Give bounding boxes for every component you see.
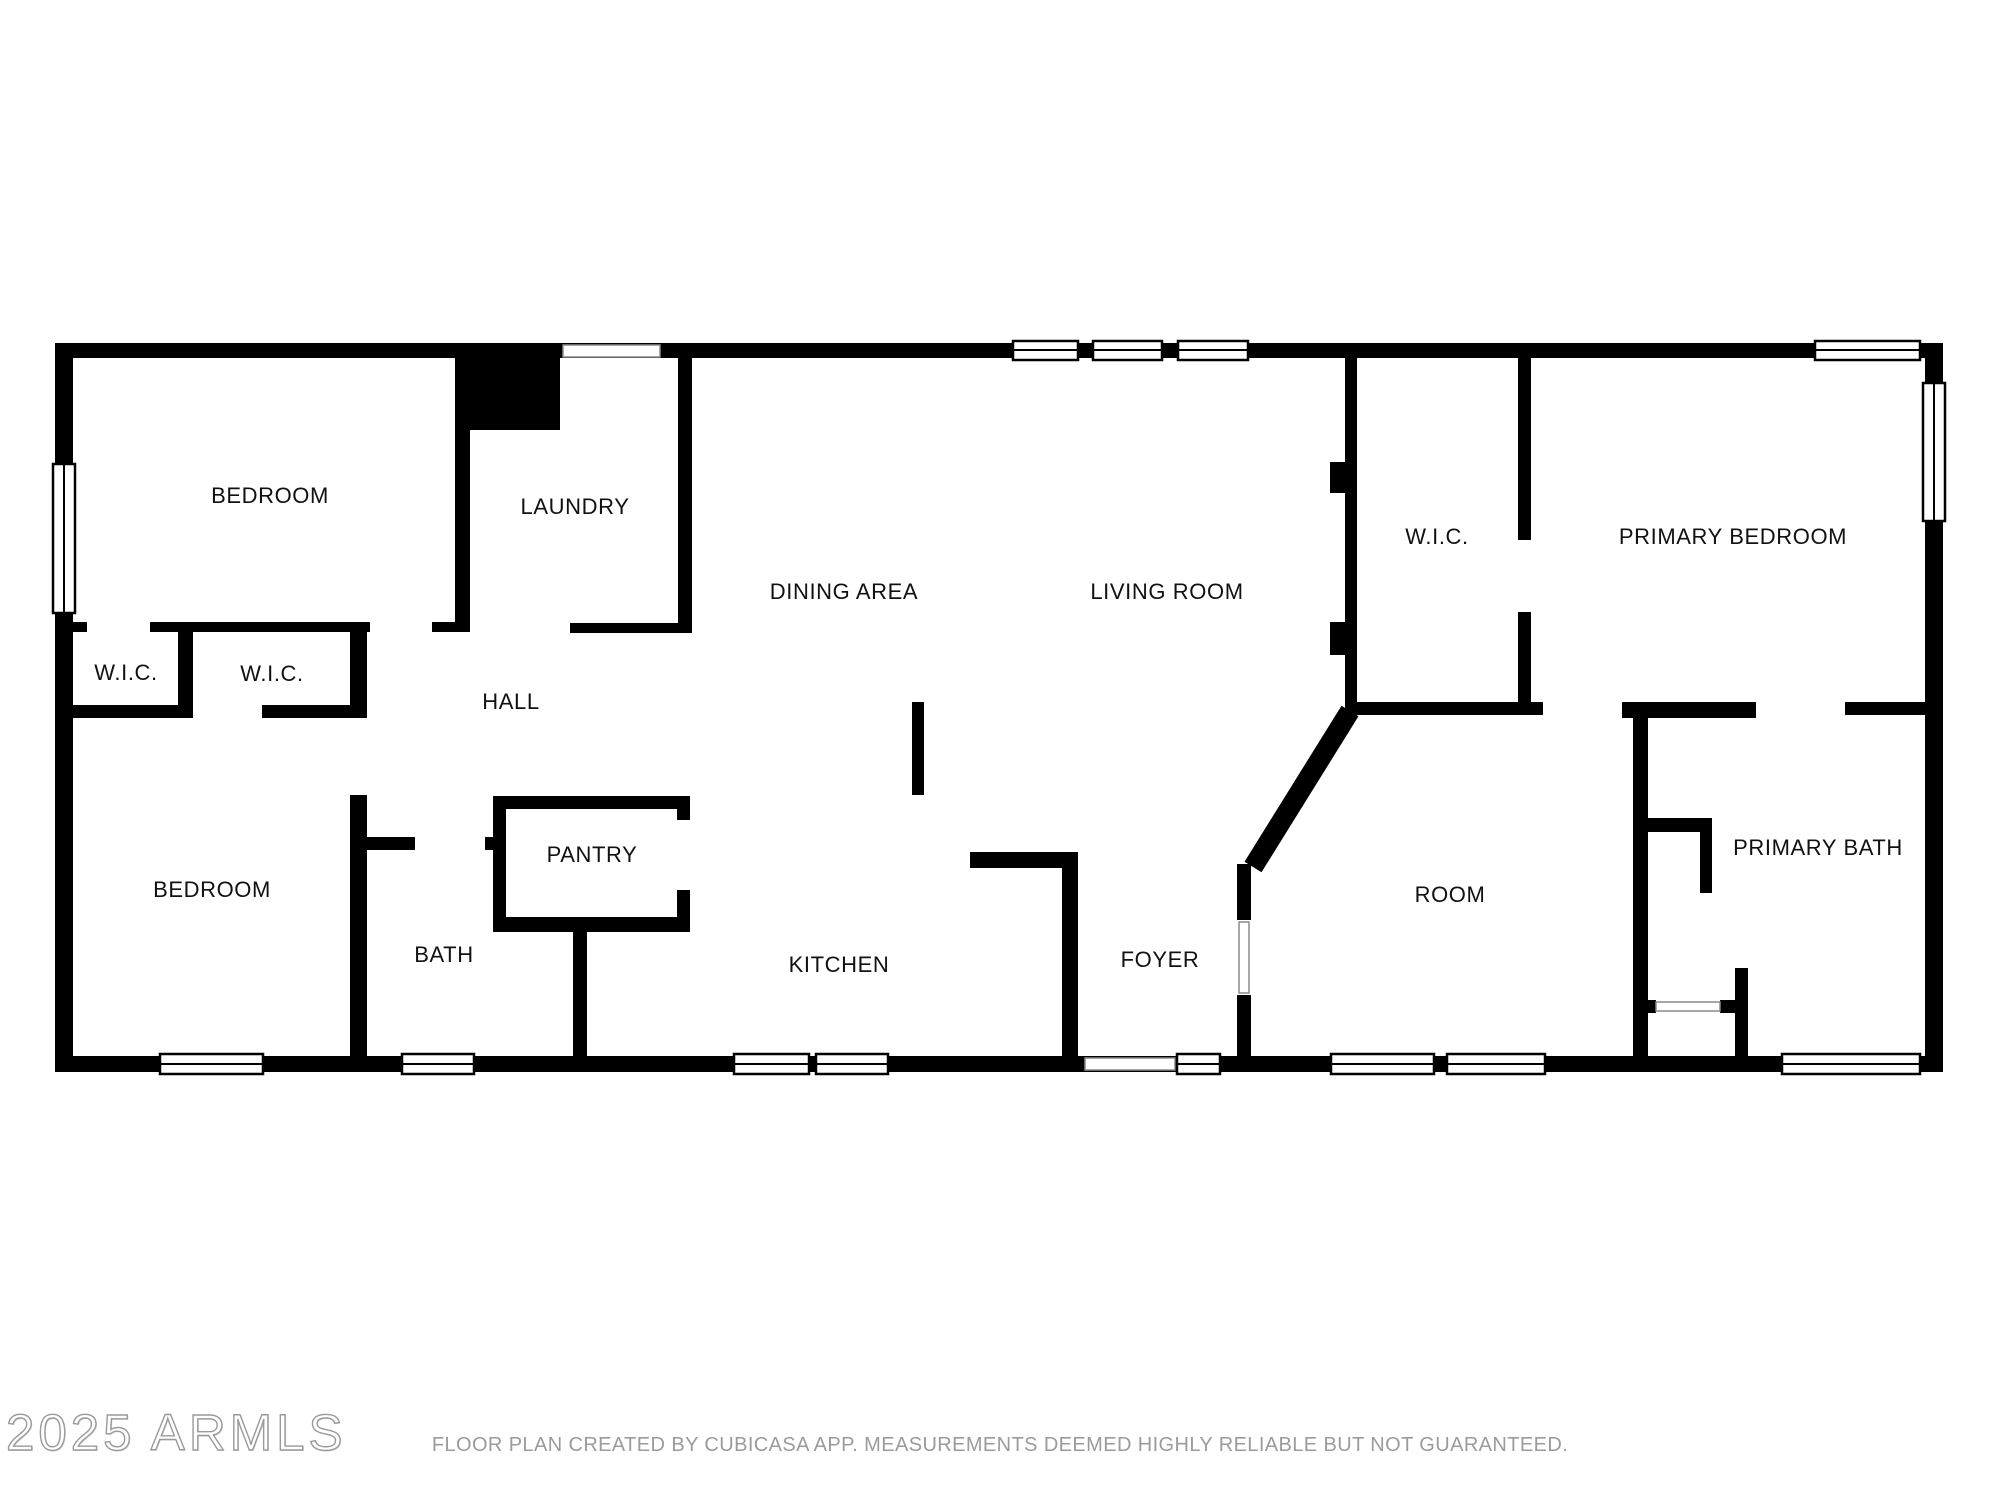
wall-wic1-bottom — [55, 705, 193, 718]
wall-wic1-wic2-divider — [178, 632, 193, 705]
room-label-living-room: LIVING ROOM — [1090, 579, 1243, 604]
room-label-hall: HALL — [482, 689, 539, 714]
wall-toilet-door-jamb-left — [1648, 1000, 1656, 1013]
wall-bedroom1-bottom-b — [150, 622, 370, 632]
room-label-laundry: LAUNDRY — [521, 494, 630, 519]
wall-bath-top-a — [350, 837, 415, 850]
wall-suite-horizontal-c — [1845, 702, 1925, 715]
wall-wic-primary-right-b — [1518, 612, 1531, 715]
wall-kitchen-peninsula-top — [970, 852, 1078, 868]
wall-bedroom1-right — [455, 358, 470, 632]
wall-foyer-right-a — [1237, 864, 1251, 920]
wall-primary-bath-shelf-return — [1700, 832, 1712, 893]
room-label-wic-left-2: W.I.C. — [240, 661, 304, 686]
interior-walls — [55, 358, 1925, 1056]
wall-kitchen-foyer-divider — [1062, 868, 1078, 1056]
room-label-primary-bath: PRIMARY BATH — [1733, 835, 1903, 860]
wall-suite-horizontal-a — [1345, 702, 1543, 715]
room-label-wic-primary: W.I.C. — [1405, 524, 1469, 549]
disclaimer-text: FLOOR PLAN CREATED BY CUBICASA APP. MEAS… — [0, 1434, 2000, 1457]
floor-plan-drawing: BEDROOM LAUNDRY DINING AREA LIVING ROOM … — [0, 0, 2000, 1500]
room-label-pantry: PANTRY — [547, 842, 638, 867]
wall-bedroom1-bottom-c — [432, 622, 470, 632]
wall-toilet-room-right — [1735, 968, 1748, 1056]
room-label-bath: BATH — [414, 942, 473, 967]
wall-bedroom1-bottom-a — [55, 622, 87, 632]
laundry-exterior-door — [563, 345, 660, 357]
wall-bath-kitchen-divider — [573, 932, 587, 1056]
wall-pantry-top — [493, 796, 690, 809]
floor-plan-page: BEDROOM LAUNDRY DINING AREA LIVING ROOM … — [0, 0, 2000, 1500]
wall-room-primary-bath-divider — [1633, 702, 1648, 1056]
room-label-dining-area: DINING AREA — [770, 579, 918, 604]
room-label-bedroom-bottom-left: BEDROOM — [153, 877, 271, 902]
room-label-primary-bedroom: PRIMARY BEDROOM — [1619, 524, 1847, 549]
wall-laundry-right — [678, 358, 692, 633]
exterior-wall-top — [55, 343, 1943, 358]
wall-wic2-right — [350, 622, 367, 717]
room-label-foyer: FOYER — [1121, 947, 1200, 972]
wall-pantry-left — [493, 796, 506, 932]
wall-foyer-diagonal — [1253, 711, 1350, 867]
wall-foyer-right-b — [1237, 995, 1251, 1056]
foyer-entry-door — [1085, 1058, 1175, 1070]
wall-pantry-right-a — [677, 796, 690, 820]
wall-primary-bath-shelf — [1645, 818, 1712, 832]
door-jamb-living-upper — [1330, 462, 1345, 493]
room-label-room: ROOM — [1415, 882, 1486, 907]
wall-hall-dining-stub — [912, 702, 924, 795]
wall-toilet-door-jamb-right — [1720, 1000, 1735, 1013]
room-label-kitchen: KITCHEN — [789, 952, 890, 977]
utility-block — [455, 358, 560, 430]
foyer-room-pocket-door — [1239, 922, 1249, 993]
room-label-wic-left-1: W.I.C. — [94, 660, 158, 685]
door-jamb-living-lower — [1330, 622, 1345, 655]
wall-living-wic-divider — [1345, 358, 1357, 713]
room-label-bedroom-top-left: BEDROOM — [211, 483, 329, 508]
wall-bedroom2-right — [350, 795, 367, 1056]
toilet-room-pocket-door — [1656, 1002, 1720, 1011]
wall-pantry-bottom — [493, 917, 690, 932]
wall-laundry-bottom — [570, 623, 692, 633]
exterior-wall-bottom — [55, 1056, 1943, 1072]
wall-wic-primary-right-a — [1518, 358, 1531, 540]
